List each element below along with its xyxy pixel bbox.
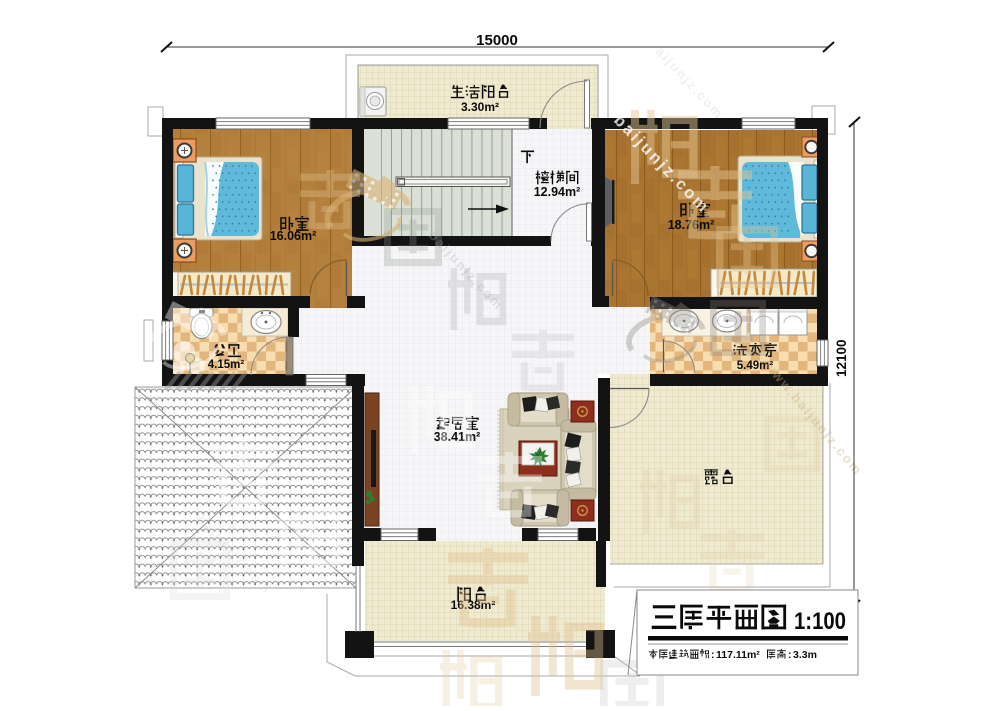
svg-text:1:100: 1:100 (794, 608, 846, 635)
svg-text::: : (788, 649, 792, 661)
svg-text:117.11m²: 117.11m² (716, 649, 760, 661)
svg-text::: : (711, 649, 715, 661)
svg-text:3.30m²: 3.30m² (461, 100, 499, 114)
svg-text:12.94m²: 12.94m² (534, 185, 581, 199)
svg-text:3.3m: 3.3m (793, 649, 817, 661)
svg-text:4.15m²: 4.15m² (208, 359, 245, 371)
svg-text:16.06m²: 16.06m² (270, 229, 317, 243)
svg-text:15000: 15000 (476, 32, 518, 49)
svg-text:12100: 12100 (834, 339, 849, 377)
